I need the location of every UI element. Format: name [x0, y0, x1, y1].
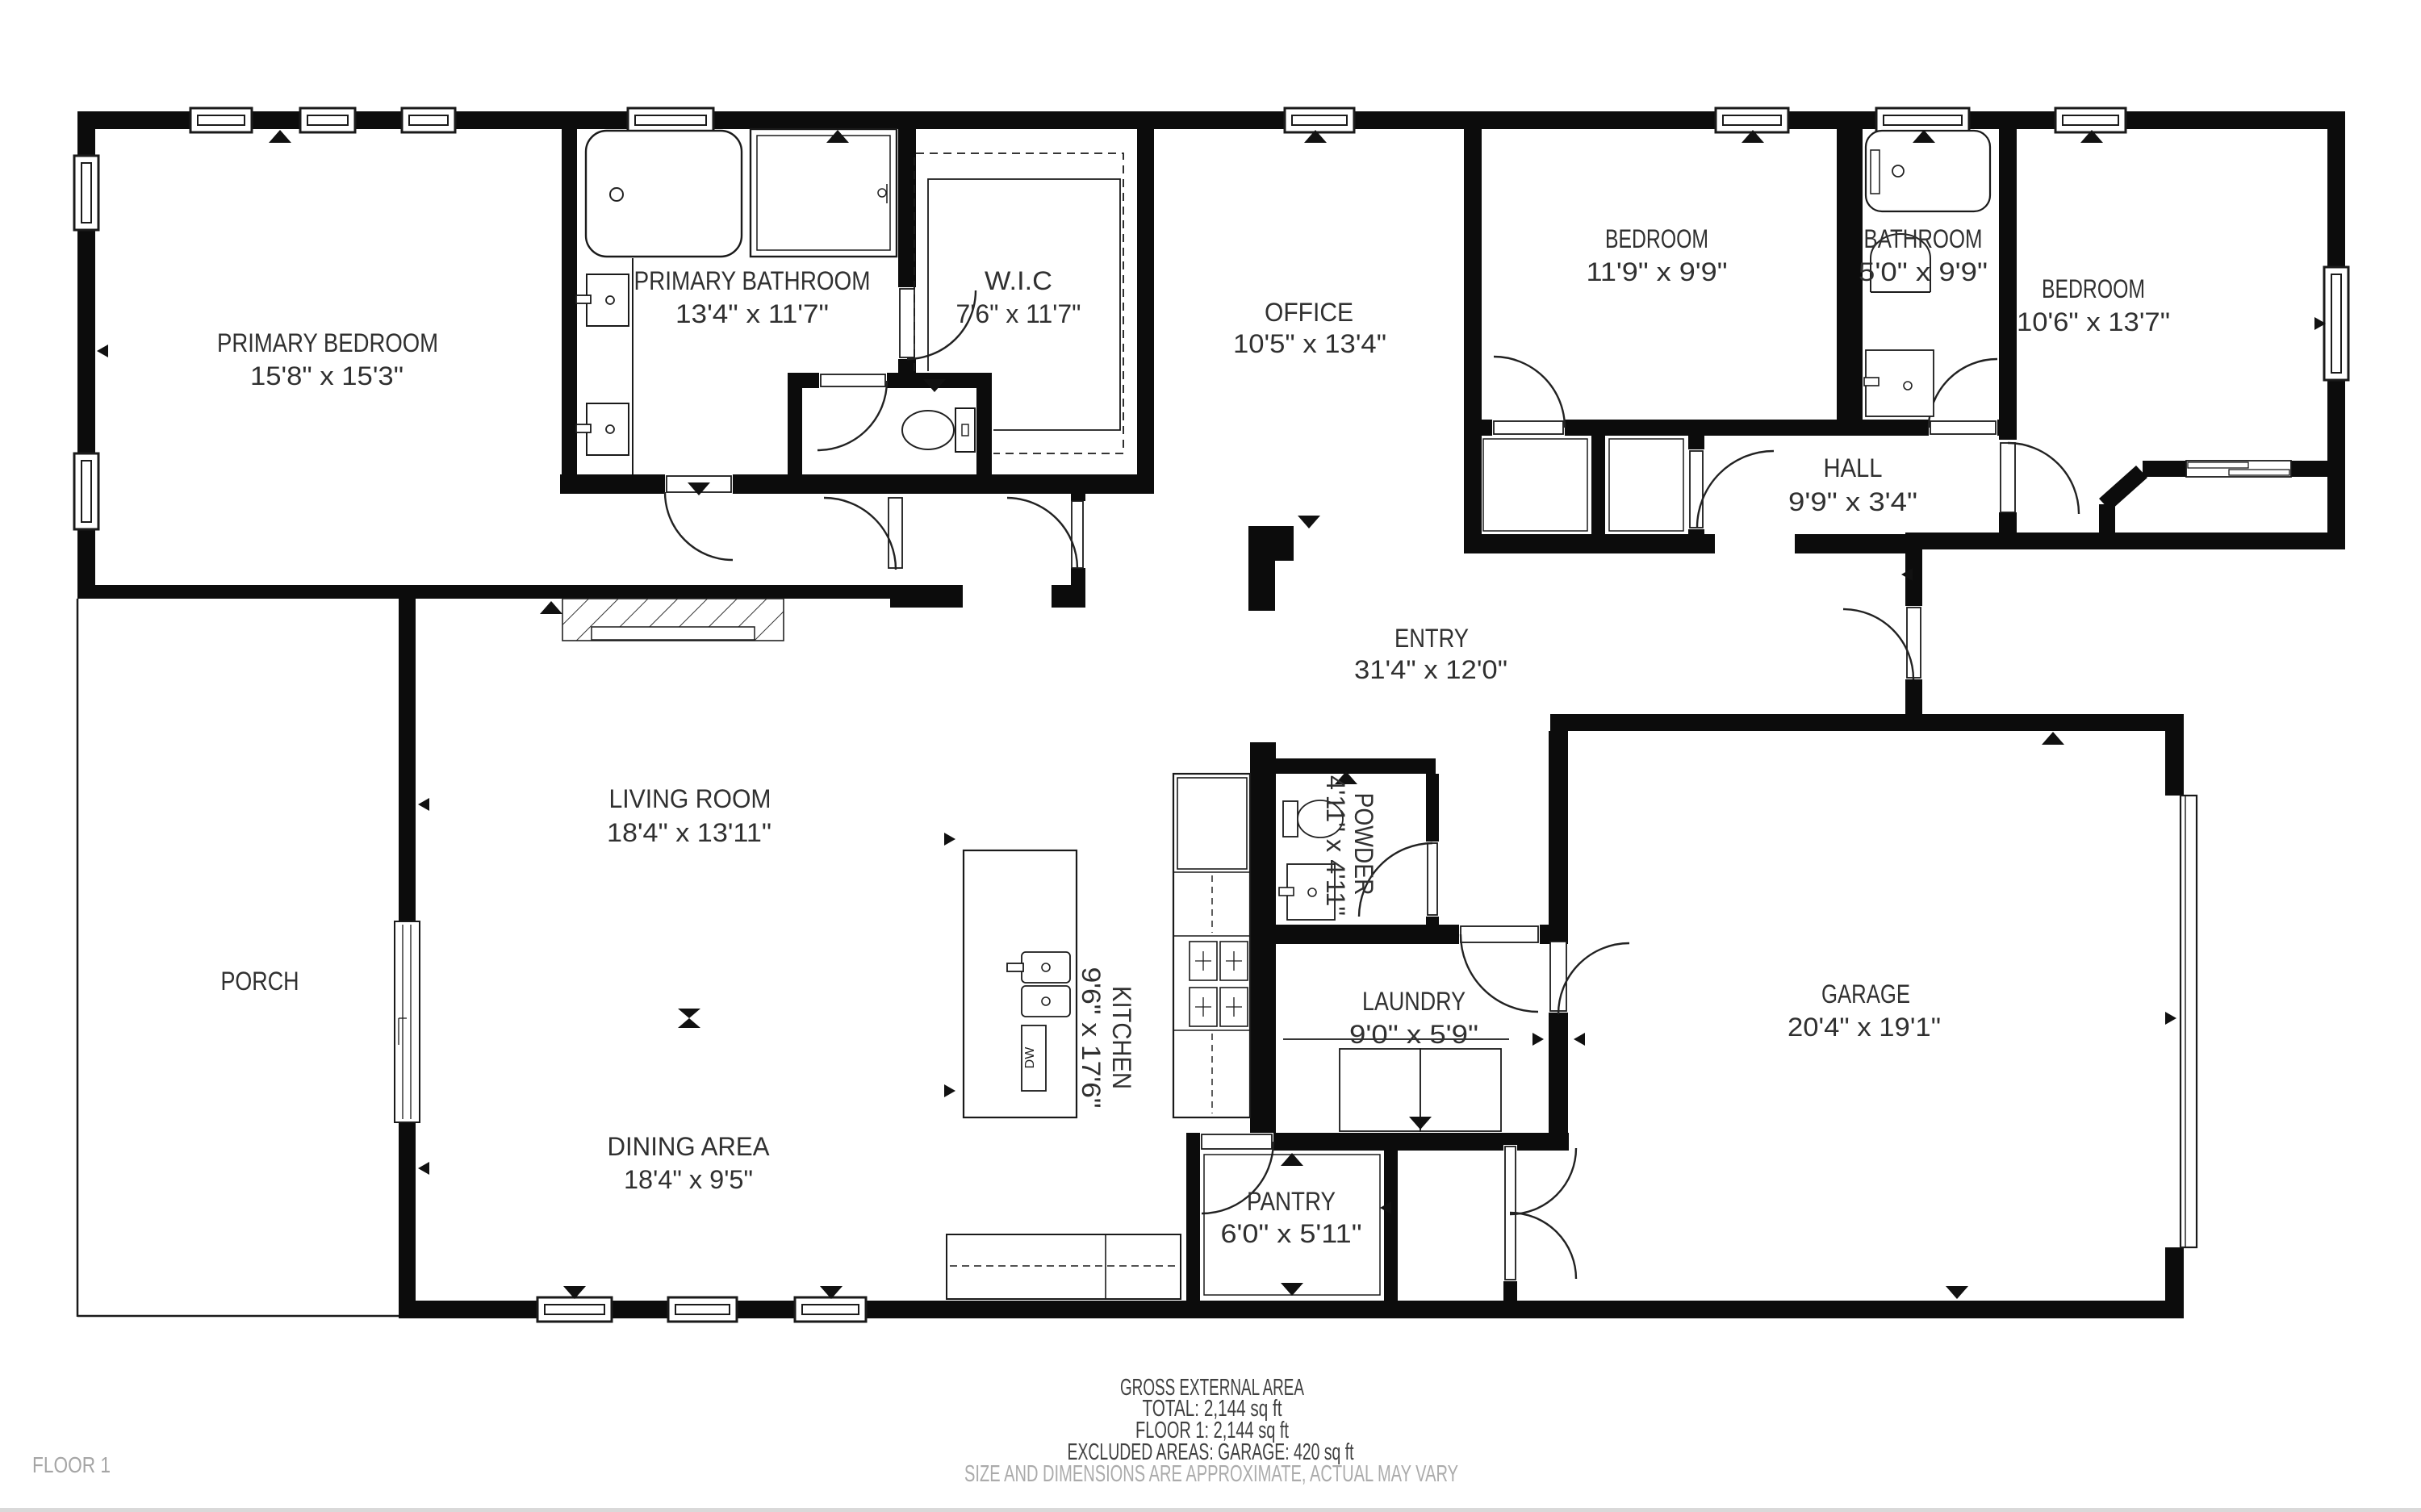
svg-text:HALL: HALL [1824, 453, 1883, 482]
svg-text:SIZE AND DIMENSIONS ARE APPROX: SIZE AND DIMENSIONS ARE APPROXIMATE, ACT… [964, 1461, 1458, 1487]
svg-text:FLOOR 1: FLOOR 1 [32, 1452, 111, 1477]
svg-text:20'4" x 19'1": 20'4" x 19'1" [1788, 1013, 1941, 1042]
svg-text:9'6" x 17'6": 9'6" x 17'6" [1077, 967, 1106, 1109]
svg-text:PANTRY: PANTRY [1247, 1187, 1336, 1216]
svg-text:5'0" x 9'9": 5'0" x 9'9" [1859, 257, 1988, 286]
svg-text:31'4" x 12'0": 31'4" x 12'0" [1354, 655, 1507, 684]
svg-text:ENTRY: ENTRY [1394, 624, 1469, 653]
svg-text:LAUNDRY: LAUNDRY [1362, 987, 1466, 1016]
svg-text:POWDER: POWDER [1349, 793, 1378, 896]
svg-text:KITCHEN: KITCHEN [1107, 986, 1136, 1089]
svg-text:18'4" x 9'5": 18'4" x 9'5" [624, 1165, 753, 1194]
svg-text:18'4" x 13'11": 18'4" x 13'11" [607, 818, 771, 847]
svg-text:6'0" x 5'11": 6'0" x 5'11" [1221, 1219, 1362, 1248]
svg-text:4'11" x 4'11": 4'11" x 4'11" [1321, 775, 1350, 916]
svg-text:BEDROOM: BEDROOM [2042, 274, 2145, 303]
svg-text:GARAGE: GARAGE [1821, 979, 1910, 1009]
svg-text:15'8" x 15'3": 15'8" x 15'3" [250, 361, 403, 391]
svg-text:OFFICE: OFFICE [1265, 298, 1353, 327]
svg-text:LIVING ROOM: LIVING ROOM [609, 784, 771, 813]
svg-text:7'6" x 11'7": 7'6" x 11'7" [956, 299, 1081, 328]
svg-text:DINING AREA: DINING AREA [608, 1132, 771, 1161]
svg-text:13'4" x 11'7": 13'4" x 11'7" [675, 299, 829, 328]
svg-text:W.I.C: W.I.C [985, 266, 1052, 295]
svg-text:11'9" x 9'9": 11'9" x 9'9" [1587, 257, 1728, 286]
svg-text:PORCH: PORCH [221, 967, 299, 996]
svg-text:BATHROOM: BATHROOM [1864, 224, 1983, 253]
svg-text:PRIMARY BEDROOM: PRIMARY BEDROOM [217, 328, 438, 357]
svg-text:10'6" x 13'7": 10'6" x 13'7" [2017, 307, 2170, 336]
svg-text:9'0" x 5'9": 9'0" x 5'9" [1349, 1020, 1478, 1049]
svg-text:9'9" x 3'4": 9'9" x 3'4" [1788, 487, 1917, 516]
svg-text:PRIMARY BATHROOM: PRIMARY BATHROOM [634, 266, 871, 295]
svg-text:10'5" x 13'4": 10'5" x 13'4" [1233, 329, 1386, 358]
svg-text:BEDROOM: BEDROOM [1605, 224, 1708, 253]
svg-text:DW: DW [1023, 1046, 1037, 1069]
